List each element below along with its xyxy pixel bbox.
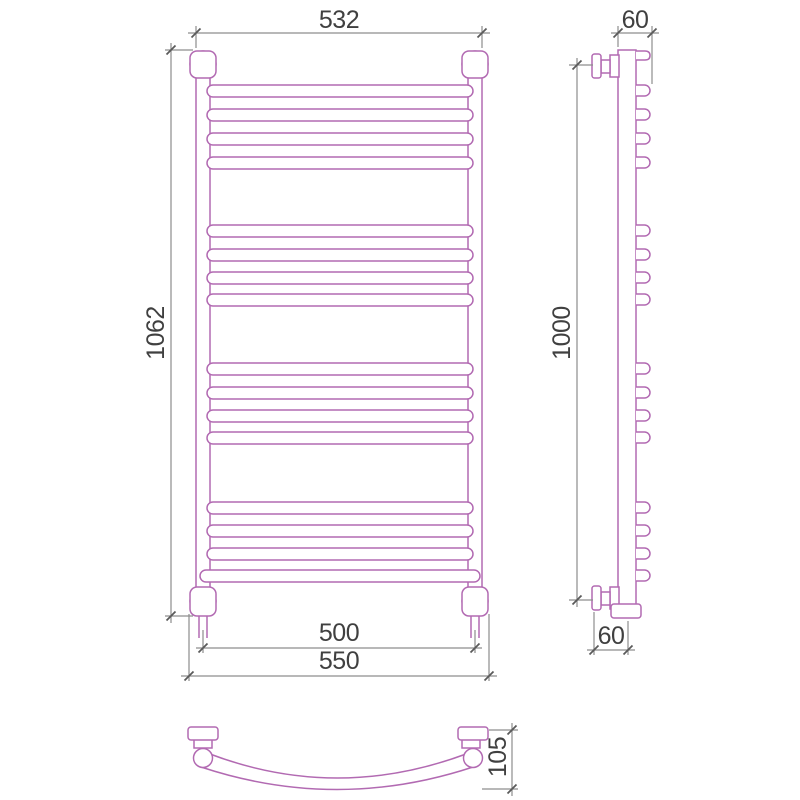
dim-front-top-width: 532 [188, 6, 490, 48]
rung-end [636, 225, 650, 236]
rung-end [636, 109, 650, 120]
rung-end [636, 432, 650, 443]
towel-rail-technical-drawing: 532 1062 500 550 [0, 0, 800, 800]
bowed-rung [200, 570, 480, 582]
dim-label-60-bottom: 60 [598, 622, 625, 650]
rung [207, 525, 473, 537]
dim-label-550: 550 [319, 647, 359, 675]
dim-label-500: 500 [319, 619, 359, 647]
front-bottom-right-elbow [462, 587, 488, 616]
bowed-rail-inner-edge [210, 754, 466, 778]
rung-end [636, 570, 650, 581]
rung-end [636, 133, 650, 144]
rung [207, 387, 473, 399]
rung [207, 157, 473, 169]
rung [207, 502, 473, 514]
bottom-left-mount [188, 727, 218, 768]
rung-end [636, 272, 650, 283]
dim-label-532: 532 [319, 6, 359, 34]
rung [207, 410, 473, 422]
dim-front-height: 1062 [142, 43, 193, 623]
rung [207, 432, 473, 444]
rung-end [636, 502, 650, 513]
rung [207, 272, 473, 284]
rung-end [636, 157, 650, 168]
rung-end [636, 249, 650, 260]
rung-end [636, 410, 650, 421]
side-view [592, 50, 650, 618]
dim-label-60-top: 60 [622, 6, 649, 34]
drawing-canvas: 532 1062 500 550 [0, 0, 800, 800]
front-view [190, 51, 488, 638]
dim-side-mounting-height: 1000 [548, 58, 593, 607]
dim-label-1062: 1062 [142, 306, 170, 360]
rung [207, 133, 473, 145]
dim-label-105: 105 [484, 737, 512, 777]
side-tube [618, 50, 636, 612]
rung-end [636, 525, 650, 536]
rung [207, 249, 473, 261]
bottom-view [188, 727, 488, 790]
rung-end [636, 548, 650, 559]
rung [207, 363, 473, 375]
front-top-right-cap [462, 51, 488, 78]
rung [207, 225, 473, 237]
rung-end [636, 387, 650, 398]
dim-label-1000: 1000 [548, 306, 576, 360]
side-bottom-cap [611, 604, 641, 618]
rung-end [636, 85, 650, 96]
rung [207, 85, 473, 97]
rung [207, 109, 473, 121]
rung [207, 548, 473, 560]
rung-end [636, 363, 650, 374]
side-top-cap [636, 51, 650, 60]
front-top-left-cap [190, 51, 216, 78]
rung [207, 294, 473, 306]
side-top-bracket [592, 54, 619, 78]
rung-end [636, 294, 650, 305]
dimensions: 532 1062 500 550 [142, 6, 659, 796]
front-bottom-left-elbow [190, 587, 216, 616]
front-left-tube [196, 72, 210, 592]
